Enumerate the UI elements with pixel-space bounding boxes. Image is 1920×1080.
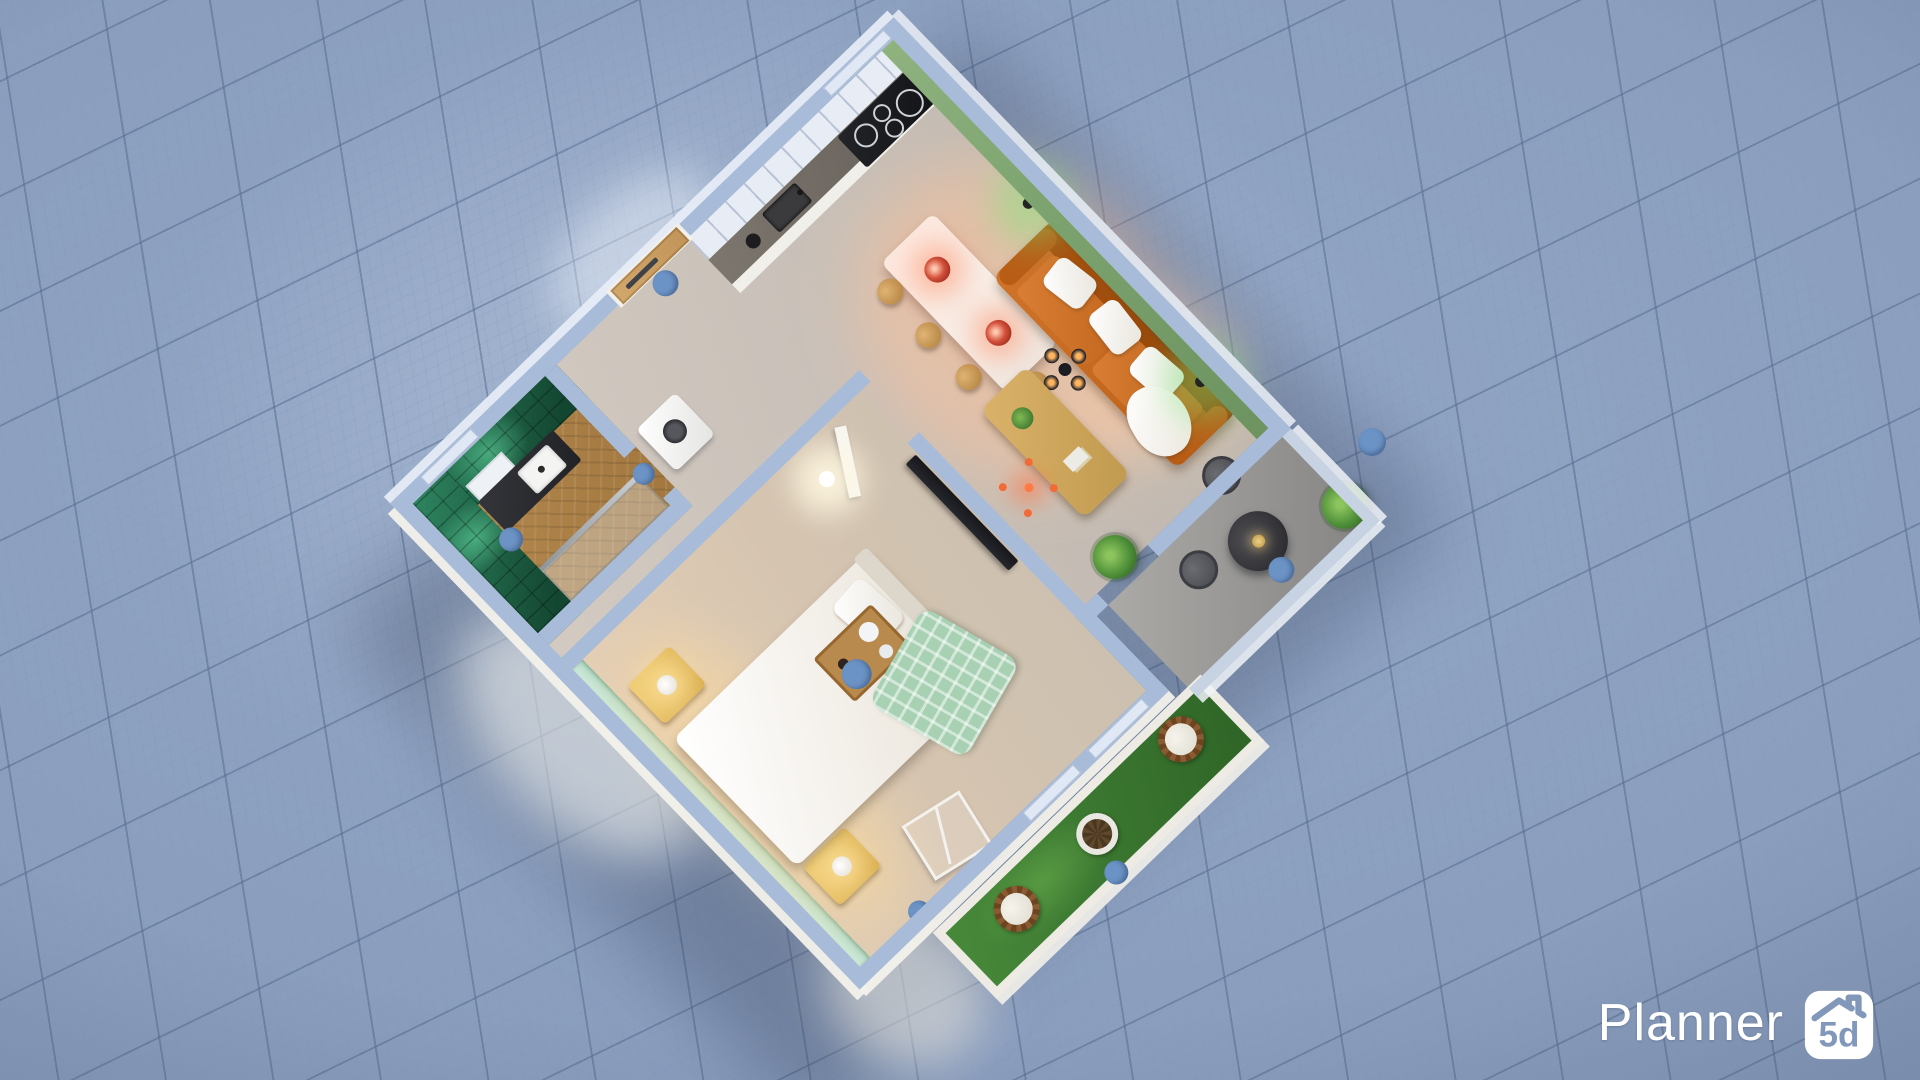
planner5d-logo[interactable]: Planner 5d <box>1598 982 1878 1064</box>
logo-house-icon: 5d <box>1800 982 1878 1064</box>
table-books <box>1063 446 1089 472</box>
svg-text:5d: 5d <box>1819 1015 1860 1054</box>
logo-brand-text: Planner <box>1598 997 1784 1049</box>
table-plant <box>1007 403 1038 434</box>
render-viewport: Planner 5d <box>0 0 1920 1080</box>
background-marker-dot[interactable] <box>1358 428 1386 456</box>
candle <box>1249 532 1267 550</box>
